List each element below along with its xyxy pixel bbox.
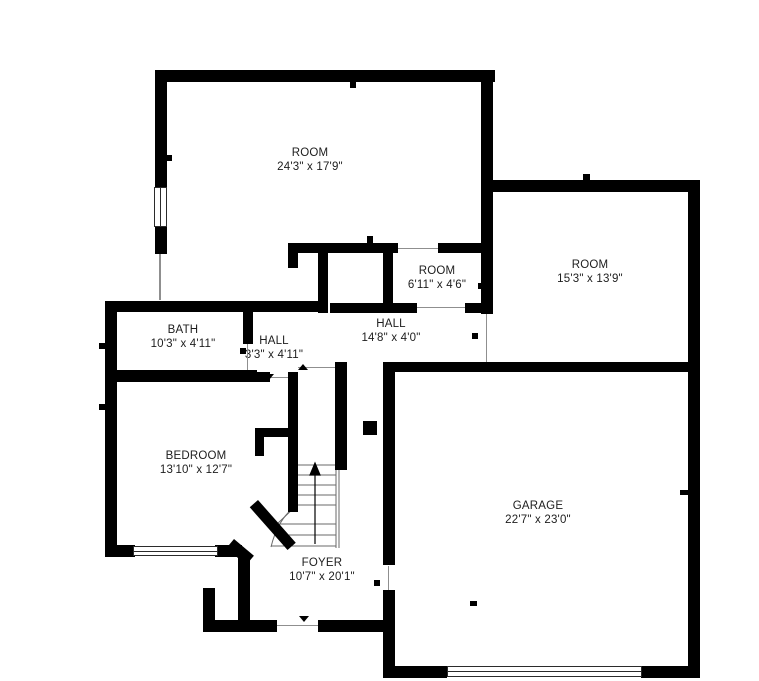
- dimension-tick: [167, 155, 172, 161]
- wall-segment: [383, 590, 395, 678]
- dimension-tick: [385, 283, 390, 289]
- room-dimensions: 10'3" x 4'11": [151, 337, 216, 351]
- wall-segment: [243, 312, 253, 344]
- wall-segment: [155, 226, 167, 254]
- floor-plan: ROOM 24'3" x 17'9" ROOM 6'11" x 4'6" ROO…: [0, 0, 759, 681]
- stairs-up-arrow: [310, 463, 320, 544]
- dimension-tick: [240, 348, 246, 354]
- room-dimensions: 13'10" x 12'7": [160, 463, 232, 477]
- dimension-tick: [99, 404, 105, 410]
- room-dimensions: 10'7" x 20'1": [289, 570, 355, 584]
- wall-segment: [465, 303, 493, 313]
- wall-segment: [255, 428, 264, 456]
- wall-segment: [155, 70, 495, 82]
- wall-segment: [288, 253, 298, 268]
- bedroom-door-marker-icon: [264, 374, 274, 380]
- wall-segment: [155, 70, 167, 188]
- wall-segment: [105, 301, 117, 557]
- garage-door-line: [448, 671, 641, 672]
- room-name: GARAGE: [505, 499, 571, 513]
- room-label-garage: GARAGE 22'7" x 23'0": [505, 499, 571, 527]
- room-label-bath: BATH 10'3" x 4'11": [151, 323, 216, 351]
- wall-segment: [383, 362, 395, 565]
- room-dimensions: 6'11" x 4'6": [408, 278, 466, 292]
- door-opening-line: [247, 344, 248, 370]
- door-opening-line: [414, 307, 465, 308]
- door-opening-line: [277, 625, 318, 626]
- room-dimensions: 3'3" x 4'11": [245, 348, 303, 362]
- wall-segment: [440, 243, 493, 253]
- dimension-tick: [393, 243, 398, 253]
- entry-door-marker-icon: [299, 616, 309, 622]
- wall-segment: [335, 362, 347, 470]
- window: [133, 546, 218, 556]
- wall-segment: [105, 545, 135, 557]
- room-label-bedroom: BEDROOM 13'10" x 12'7": [160, 449, 232, 477]
- room-name: HALL: [245, 334, 303, 348]
- dimension-tick: [350, 82, 356, 88]
- room-label-foyer: FOYER 10'7" x 20'1": [289, 556, 355, 584]
- dimension-tick: [438, 243, 443, 253]
- room-name: ROOM: [277, 146, 343, 160]
- dimension-tick: [478, 283, 483, 289]
- dimension-tick: [412, 303, 417, 313]
- wall-segment: [105, 370, 257, 382]
- dimension-tick: [583, 174, 590, 181]
- window: [154, 187, 167, 227]
- room-dimensions: 22'7" x 23'0": [505, 513, 571, 527]
- room-dimensions: 15'3" x 13'9": [557, 272, 623, 286]
- room-label-top-left: ROOM 24'3" x 17'9": [277, 146, 343, 174]
- dimension-tick: [470, 601, 477, 606]
- wall-segment: [481, 192, 493, 314]
- door-opening-line: [388, 566, 389, 590]
- wall-segment: [688, 374, 700, 678]
- room-label-top-right: ROOM 15'3" x 13'9": [557, 258, 623, 286]
- wall-segment: [641, 666, 700, 678]
- room-dimensions: 24'3" x 17'9": [277, 160, 343, 174]
- dimension-tick: [680, 490, 688, 495]
- dimension-tick: [374, 580, 380, 586]
- wall-segment: [105, 301, 322, 312]
- room-name: FOYER: [289, 556, 355, 570]
- wall-segment: [203, 620, 277, 632]
- door-opening-line: [395, 248, 440, 249]
- wall-segment: [330, 303, 414, 313]
- room-name: ROOM: [557, 258, 623, 272]
- garage-door: [447, 666, 642, 677]
- wall-segment: [288, 243, 395, 253]
- room-name: BEDROOM: [160, 449, 232, 463]
- wall-segment: [383, 666, 447, 678]
- room-name: BATH: [151, 323, 216, 337]
- wall-segment: [481, 70, 493, 192]
- door-opening-line: [486, 314, 487, 362]
- door-marker-stairs-icon: [298, 364, 308, 370]
- wall-segment: [318, 620, 388, 632]
- window-mullion: [160, 188, 161, 226]
- wall-segment: [363, 421, 377, 435]
- room-label-hall-main: HALL 14'8" x 4'0": [361, 317, 420, 345]
- window-mullion: [134, 551, 217, 552]
- wall-segment: [383, 362, 700, 372]
- wall-segment: [288, 372, 298, 512]
- door-opening-line: [159, 254, 161, 300]
- room-label-small: ROOM 6'11" x 4'6": [408, 264, 466, 292]
- room-name: HALL: [361, 317, 420, 331]
- dimension-tick: [367, 236, 373, 243]
- wall-segment: [688, 190, 700, 374]
- dimension-tick: [99, 343, 105, 349]
- room-label-hall-small: HALL 3'3" x 4'11": [245, 334, 303, 362]
- room-name: ROOM: [408, 264, 466, 278]
- wall-segment: [481, 180, 700, 192]
- dimension-tick: [472, 333, 478, 339]
- room-dimensions: 14'8" x 4'0": [361, 331, 420, 345]
